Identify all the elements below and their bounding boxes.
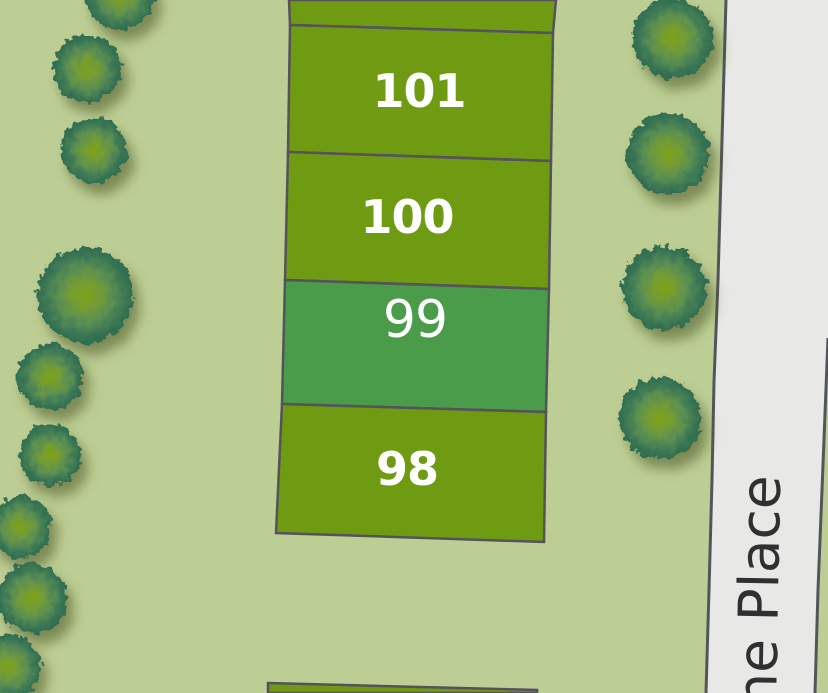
plot-map: ne Place 101 100 99 98 [0, 0, 828, 693]
tree-icon [53, 35, 121, 103]
tree-icon [622, 246, 706, 330]
tree-icon [627, 113, 709, 195]
tree-icon [37, 247, 133, 343]
tree-icon [619, 377, 701, 459]
tree-icon [0, 563, 67, 633]
plot-101[interactable] [288, 25, 553, 161]
street-name-label: ne Place [725, 475, 793, 693]
tree-icon [19, 424, 81, 486]
tree-icon [17, 344, 83, 410]
tree-icon [61, 117, 127, 183]
plot-99-selected[interactable] [282, 280, 549, 412]
tree-icon [633, 0, 713, 78]
plot-98[interactable] [276, 404, 546, 542]
plot-100[interactable] [285, 152, 551, 289]
